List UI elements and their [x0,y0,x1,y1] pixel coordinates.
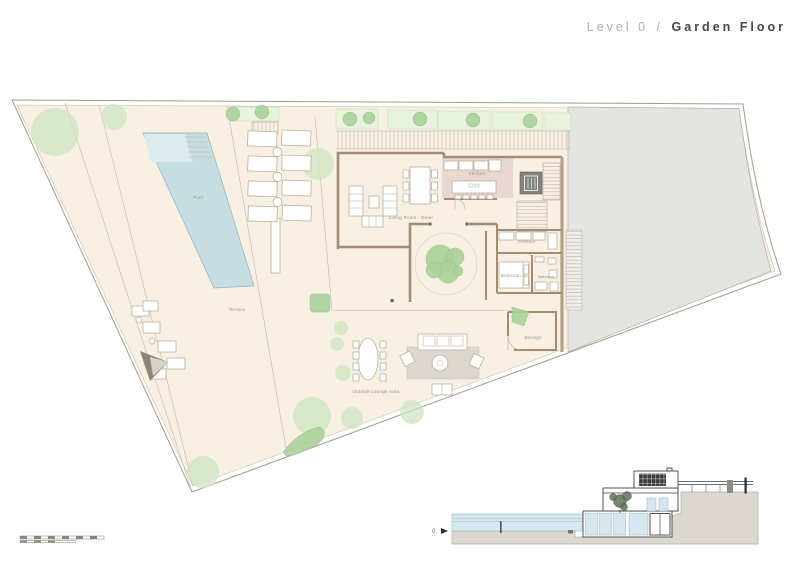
label-pool: Pool [193,195,203,200]
dining-table [410,167,430,204]
pool-side-planter [271,218,280,273]
drawing-sheet: Level 0 / Garden Floor [0,0,799,565]
kitchen-island [452,181,496,193]
label-bedroom4: Bedroom 4 [501,273,526,278]
exterior-side-stairs [566,230,582,310]
label-dresser: Dresser [518,239,536,244]
label-storage: Storage [524,335,542,340]
floor-plan-canvas: Pool Terrace Outside Lounge Area Living … [0,0,799,565]
outdoor-sofa [418,334,467,350]
label-outside-lounge: Outside Lounge Area [353,389,400,394]
label-bathroom: Bathroom [538,275,554,279]
section-house [583,468,678,537]
label-terrace: Terrace [229,307,246,312]
level-marker-arrow [441,528,448,534]
section-level-marker: 0 [432,528,448,535]
label-living-room: Living Room · Diner [389,215,434,220]
lift [520,172,542,194]
label-kitchen: Kitchen [469,171,486,176]
level-marker-text: 0 [432,529,436,535]
section-drawing: 0 [432,468,758,544]
column [391,299,394,302]
outdoor-dining-table [358,338,378,380]
section-pool [452,514,583,534]
section-canopy [678,478,753,494]
scale-bar [20,536,104,543]
